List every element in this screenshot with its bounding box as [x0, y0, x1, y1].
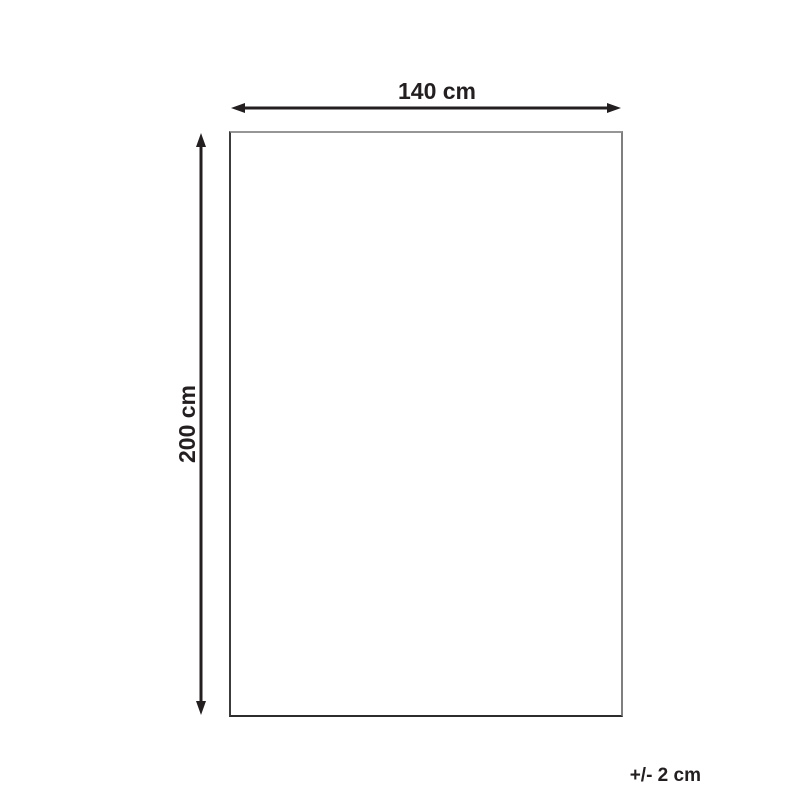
product-outline-rectangle [229, 131, 623, 717]
product-dimension-diagram: 140 cm 200 cm +/- 2 cm [0, 0, 800, 800]
width-double-arrow-icon [229, 98, 623, 118]
height-double-arrow-icon [191, 131, 211, 717]
tolerance-label: +/- 2 cm [630, 765, 701, 787]
